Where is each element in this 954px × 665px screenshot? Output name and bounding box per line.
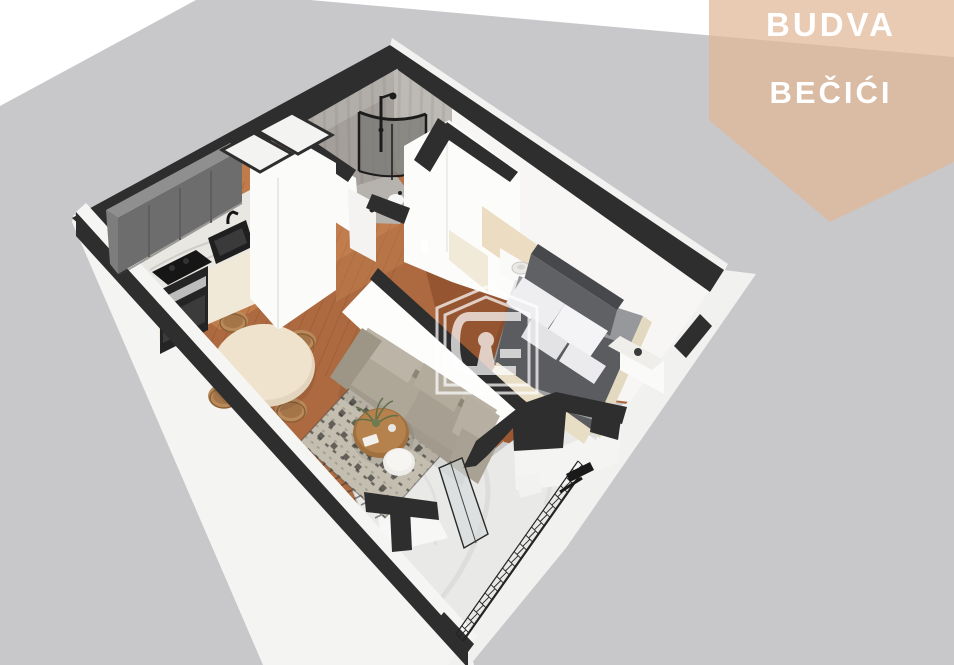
svg-text:BEČIĆI: BEČIĆI: [769, 74, 892, 110]
svg-text:BUDVA: BUDVA: [766, 6, 896, 43]
